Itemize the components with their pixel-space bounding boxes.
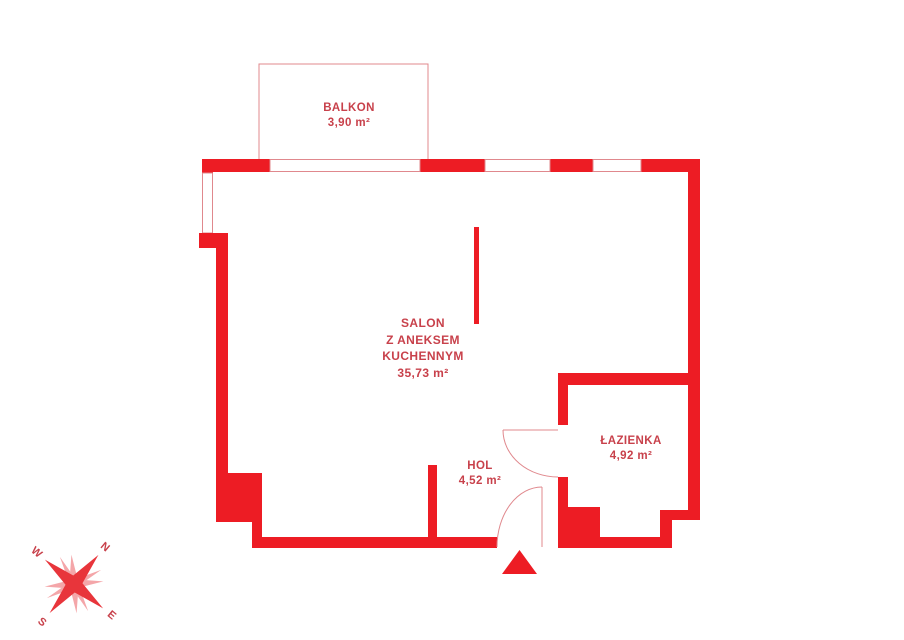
salon-name-line2: Z ANEKSEM [382,332,464,349]
salon-area: 35,73 m² [382,365,464,382]
hall-label: HOL 4,52 m² [459,459,501,489]
entrance-marker-icon [502,550,537,574]
wall-bathroom-left-upper [558,373,568,425]
compass-rose-icon: N E S W [0,508,149,640]
wall-right [688,159,700,520]
wall-kitchen-stub [474,227,479,324]
wall-bathroom-left-lower [558,477,568,507]
wall-top-segment [420,159,485,172]
compass-west-label: W [29,545,45,561]
compass-north-label: N [98,540,112,554]
bathroom-label: ŁAZIENKA 4,92 m² [600,434,661,464]
window [203,173,213,233]
bathroom-area: 4,92 m² [600,449,661,464]
wall-left-main [216,248,228,473]
hall-area: 4,52 m² [459,474,501,489]
window [270,160,420,172]
wall-hol-divider [428,465,437,537]
wall-top-segment [550,159,593,172]
wall-left-corner [202,159,213,173]
wall-left-block [199,233,228,248]
window [485,160,550,172]
entrance-door-swing-arc [497,487,542,547]
bathroom-name: ŁAZIENKA [600,434,661,449]
salon-name-line1: SALON [382,315,464,332]
balcony-area: 3,90 m² [323,116,375,131]
wall-entrance-block [558,507,600,548]
window [593,160,641,172]
bathroom-door-swing-arc [503,430,558,477]
balcony-label: BALKON 3,90 m² [323,101,375,131]
balcony-name: BALKON [323,101,375,116]
wall-left-bottom-block [216,473,262,522]
compass-east-label: E [105,609,118,623]
wall-step [660,510,672,537]
salon-label: SALON Z ANEKSEM KUCHENNYM 35,73 m² [382,315,464,381]
floor-plan-canvas: N E S W BALKON 3,90 m² SALON Z ANEKSEM K… [0,0,904,640]
wall-bathroom-top [558,373,700,385]
salon-name-line3: KUCHENNYM [382,348,464,365]
compass-south-label: S [35,615,48,629]
hall-name: HOL [459,459,501,474]
wall-step [252,522,262,537]
wall-bottom-left [252,537,497,548]
wall-bottom-right [600,537,672,548]
